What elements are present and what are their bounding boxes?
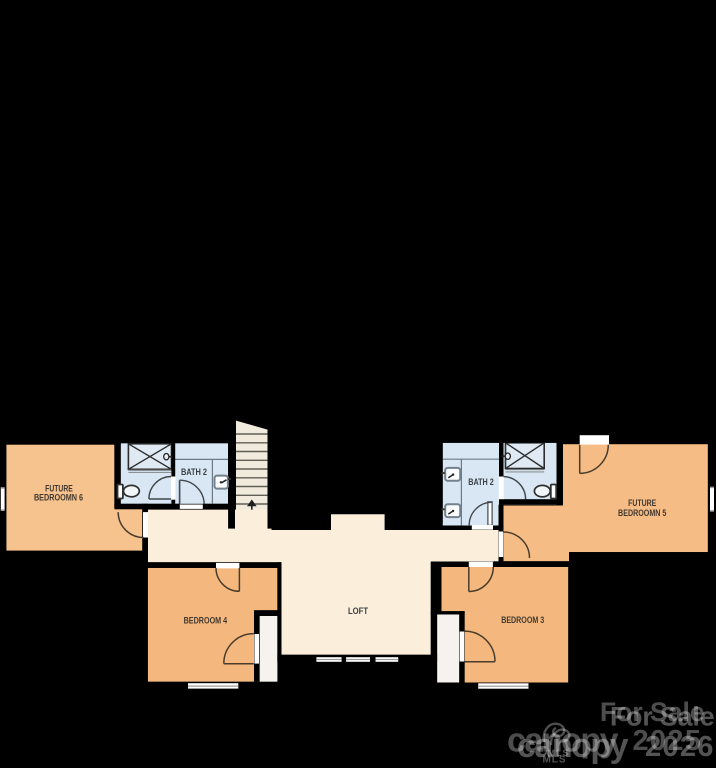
svg-text:BATH 2: BATH 2 xyxy=(468,477,494,488)
svg-text:BEDROOMN 5: BEDROOMN 5 xyxy=(618,508,667,519)
svg-text:For Sale: For Sale xyxy=(610,702,715,732)
svg-text:BATH 2: BATH 2 xyxy=(181,467,207,478)
svg-text:canopy: canopy xyxy=(517,727,629,765)
svg-text:BEDROOMN 6: BEDROOMN 6 xyxy=(34,492,83,503)
svg-text:LOFT: LOFT xyxy=(348,606,368,617)
svg-text:BEDROOM 4: BEDROOM 4 xyxy=(184,616,228,627)
svg-text:2026: 2026 xyxy=(645,731,715,763)
svg-text:BEDROOM 3: BEDROOM 3 xyxy=(501,615,544,626)
svg-text:MLS: MLS xyxy=(542,755,566,766)
